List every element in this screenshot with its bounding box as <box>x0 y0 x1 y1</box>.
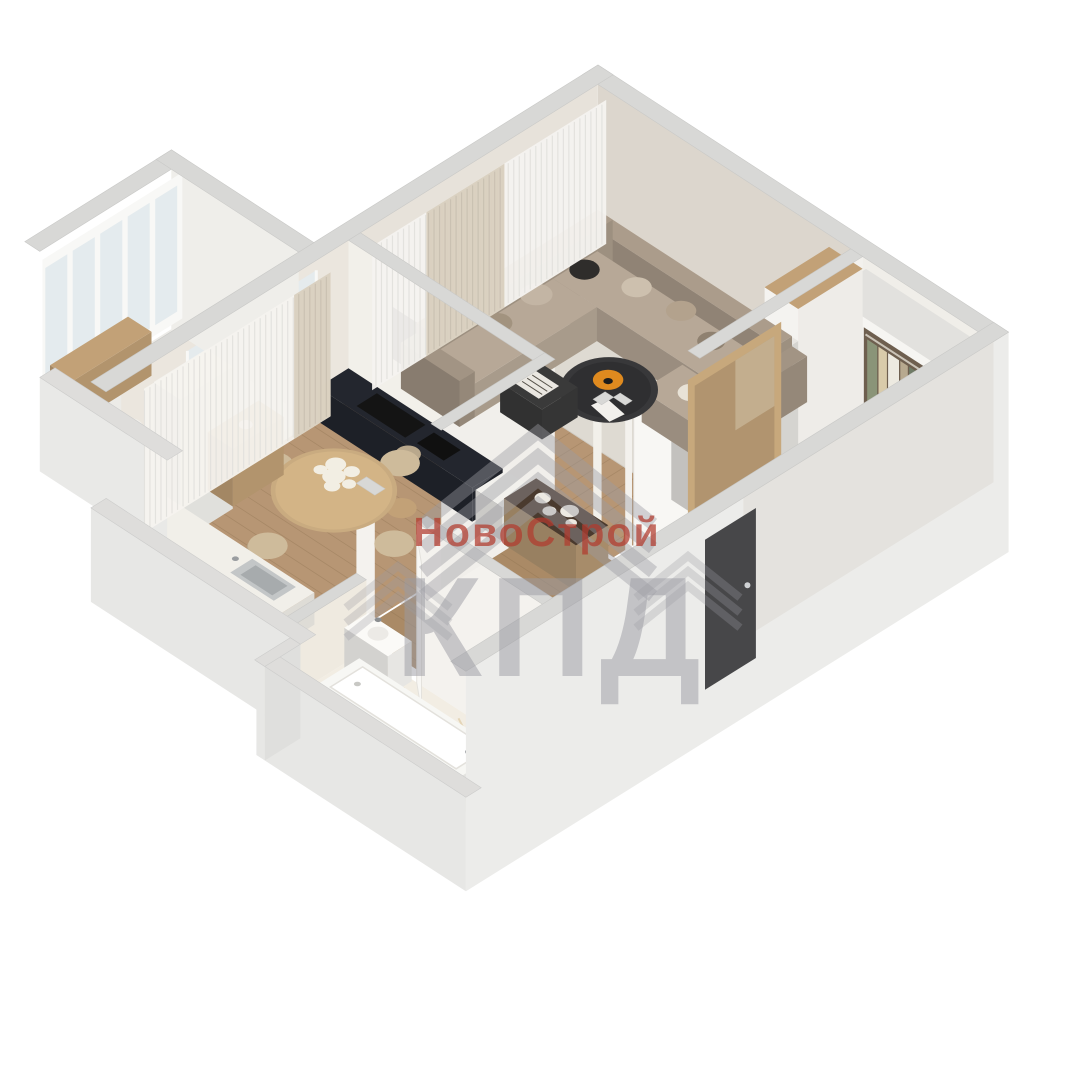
apartment-floorplan-3d: НовоСтрой КПД <box>0 0 1080 1080</box>
faucet <box>232 556 239 561</box>
floorplan-render: НовоСтрой КПД <box>0 0 1080 1080</box>
flower-centerpiece <box>324 481 340 492</box>
brand-acronym-text: КПД <box>395 548 709 707</box>
sofa-pillow <box>621 277 651 297</box>
candlestick <box>603 378 612 384</box>
flower-centerpiece <box>314 465 328 474</box>
entry-door <box>705 508 756 690</box>
flower-centerpiece <box>344 466 360 477</box>
balcony-window-pane <box>155 186 177 326</box>
flower-centerpiece <box>342 479 356 488</box>
sofa-pillow <box>666 301 696 321</box>
drain <box>354 682 361 687</box>
